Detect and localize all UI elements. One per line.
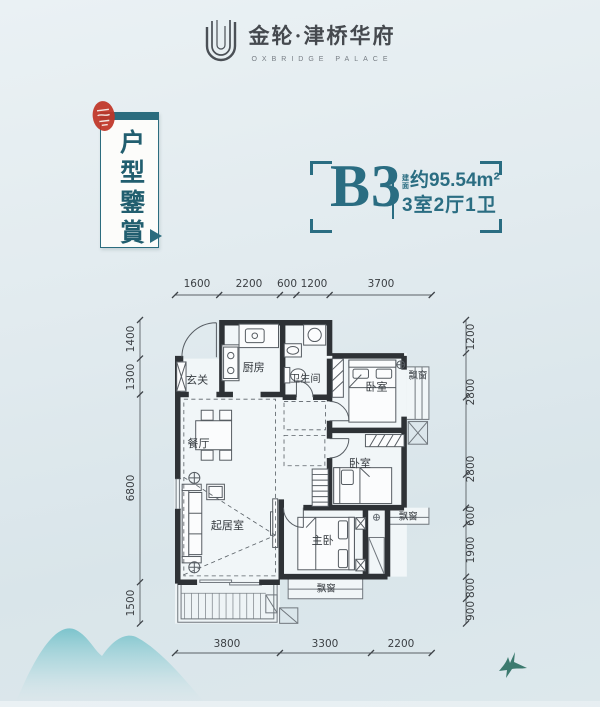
dim-label: 2800 [465,379,477,406]
corner-bracket-icon [480,219,502,233]
area-value: 约95.54m² [410,170,500,192]
banner-title: 户型鑒賞 [112,129,148,249]
room-label: 玄关 [186,372,208,386]
dim-label: 800 [465,578,477,598]
dim-label: 2200 [236,278,263,290]
dim-label: 1600 [184,278,211,290]
bay-window-label: 飘窗 [399,511,418,522]
dim-label: 1300 [125,364,137,391]
dim-label: 1200 [465,324,477,351]
room-label: 厨房 [243,361,265,374]
unit-details: 建面 约95.54m² 3室2厅1卫 [402,170,500,217]
banner-arrow-icon [150,229,162,243]
red-seal-stamp-icon [89,97,120,141]
dim-label: 1900 [465,537,477,564]
room-label: 卧室 [365,379,387,393]
poster-page: 金轮·津桥华府 OXBRIDGE PALACE 户型鑒賞 B3 建面 约95.5… [0,0,600,701]
bay-window-label: 飘窗 [408,370,427,381]
brand-block: 金轮·津桥华府 OXBRIDGE PALACE [248,20,395,63]
room-label: 起居室 [211,518,244,532]
room-label: 餐厅 [187,436,209,450]
dim-label: 1200 [301,278,328,290]
room-label: 主卧 [312,534,334,547]
header: 金轮·津桥华府 OXBRIDGE PALACE [0,20,600,71]
brand-subtitle: OXBRIDGE PALACE [251,56,392,63]
dim-label: 3700 [368,278,395,290]
divider [392,172,394,219]
bay-window-label: 飘窗 [317,582,336,593]
brand-logo-u-monogram-icon [204,20,238,71]
dim-label: 900 [465,601,477,621]
dim-label: 3300 [312,638,339,650]
bird-icon [496,650,530,687]
brand-name: 金轮·津桥华府 [248,20,395,50]
room-layout: 3室2厅1卫 [402,195,500,217]
corner-bracket-icon [310,161,332,175]
dim-label: 1400 [125,326,137,353]
unit-info-block: B3 建面 约95.54m² 3室2厅1卫 [310,161,502,233]
room-label: 卧室 [349,456,371,470]
dim-label: 2800 [465,456,477,483]
dim-label: 6800 [125,475,137,502]
dim-label: 600 [465,506,477,526]
dim-label: 2200 [388,638,415,650]
mountain-ink-wash-icon [8,586,238,707]
area-prefix: 建面 [402,175,410,190]
corner-bracket-icon [310,219,332,233]
floorplan-drawing: 玄关 厨房 卫生间 卧室 餐厅 卧室 起居室 主卧 飘窗 飘窗 飘窗 [174,320,428,624]
dim-label: 600 [277,278,297,290]
